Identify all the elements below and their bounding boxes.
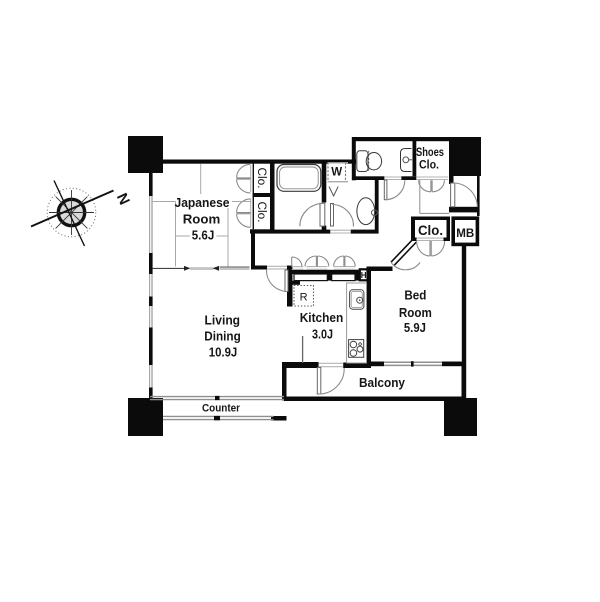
svg-text:Counter: Counter: [202, 403, 241, 415]
svg-text:5.9J: 5.9J: [404, 320, 426, 335]
svg-text:Bed: Bed: [404, 288, 426, 303]
svg-text:3.0J: 3.0J: [312, 327, 333, 342]
svg-text:Japanese: Japanese: [175, 195, 230, 210]
svg-text:MB: MB: [456, 226, 474, 240]
svg-text:Room: Room: [183, 212, 221, 227]
svg-text:R: R: [300, 292, 308, 304]
svg-text:Shoes: Shoes: [416, 147, 444, 159]
svg-text:Balcony: Balcony: [359, 375, 406, 390]
svg-text:H: H: [361, 271, 367, 280]
svg-text:Kitchen: Kitchen: [300, 310, 344, 325]
svg-text:Dining: Dining: [204, 329, 241, 344]
svg-text:W: W: [331, 167, 342, 179]
svg-text:Clo.: Clo.: [418, 222, 443, 238]
svg-text:Clo.: Clo.: [255, 168, 267, 189]
svg-text:5.6J: 5.6J: [192, 228, 215, 243]
svg-text:Living: Living: [205, 313, 241, 328]
svg-text:Clo.: Clo.: [255, 202, 267, 223]
svg-text:Clo.: Clo.: [419, 160, 439, 172]
svg-text:Room: Room: [399, 305, 432, 320]
svg-text:10.9J: 10.9J: [209, 345, 238, 360]
